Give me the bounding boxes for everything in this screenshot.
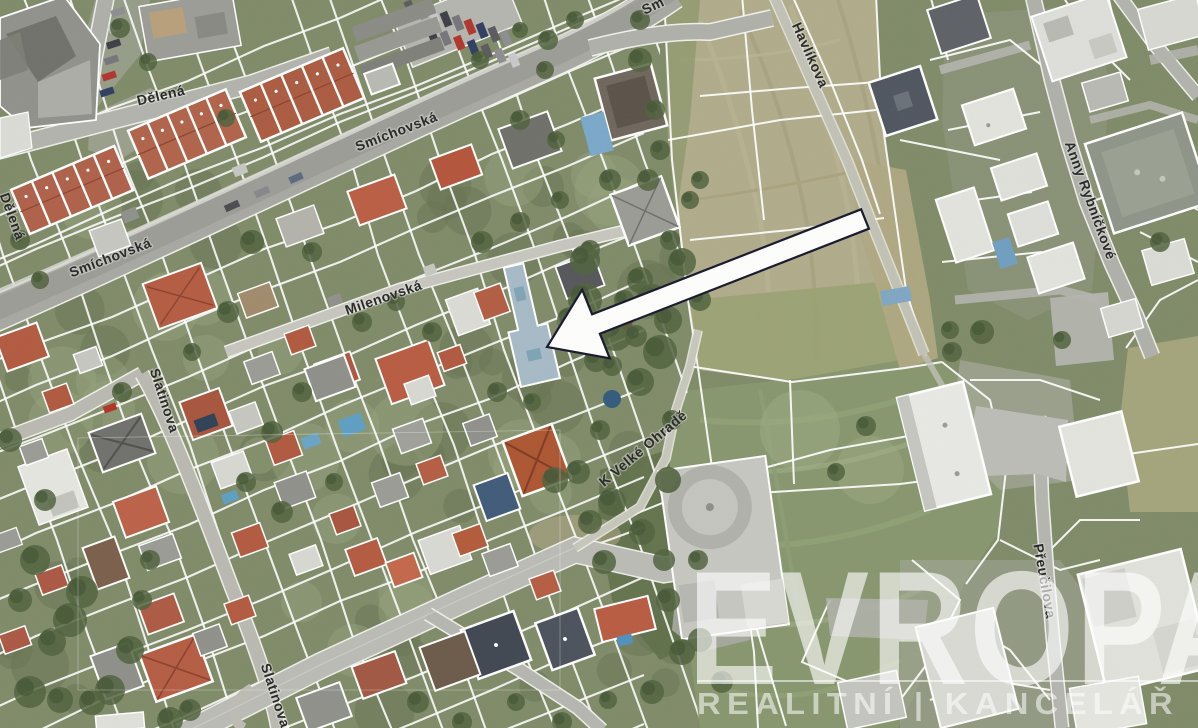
svg-text:REALITNÍ | KANCELÁŘ: REALITNÍ | KANCELÁŘ: [697, 685, 1179, 721]
